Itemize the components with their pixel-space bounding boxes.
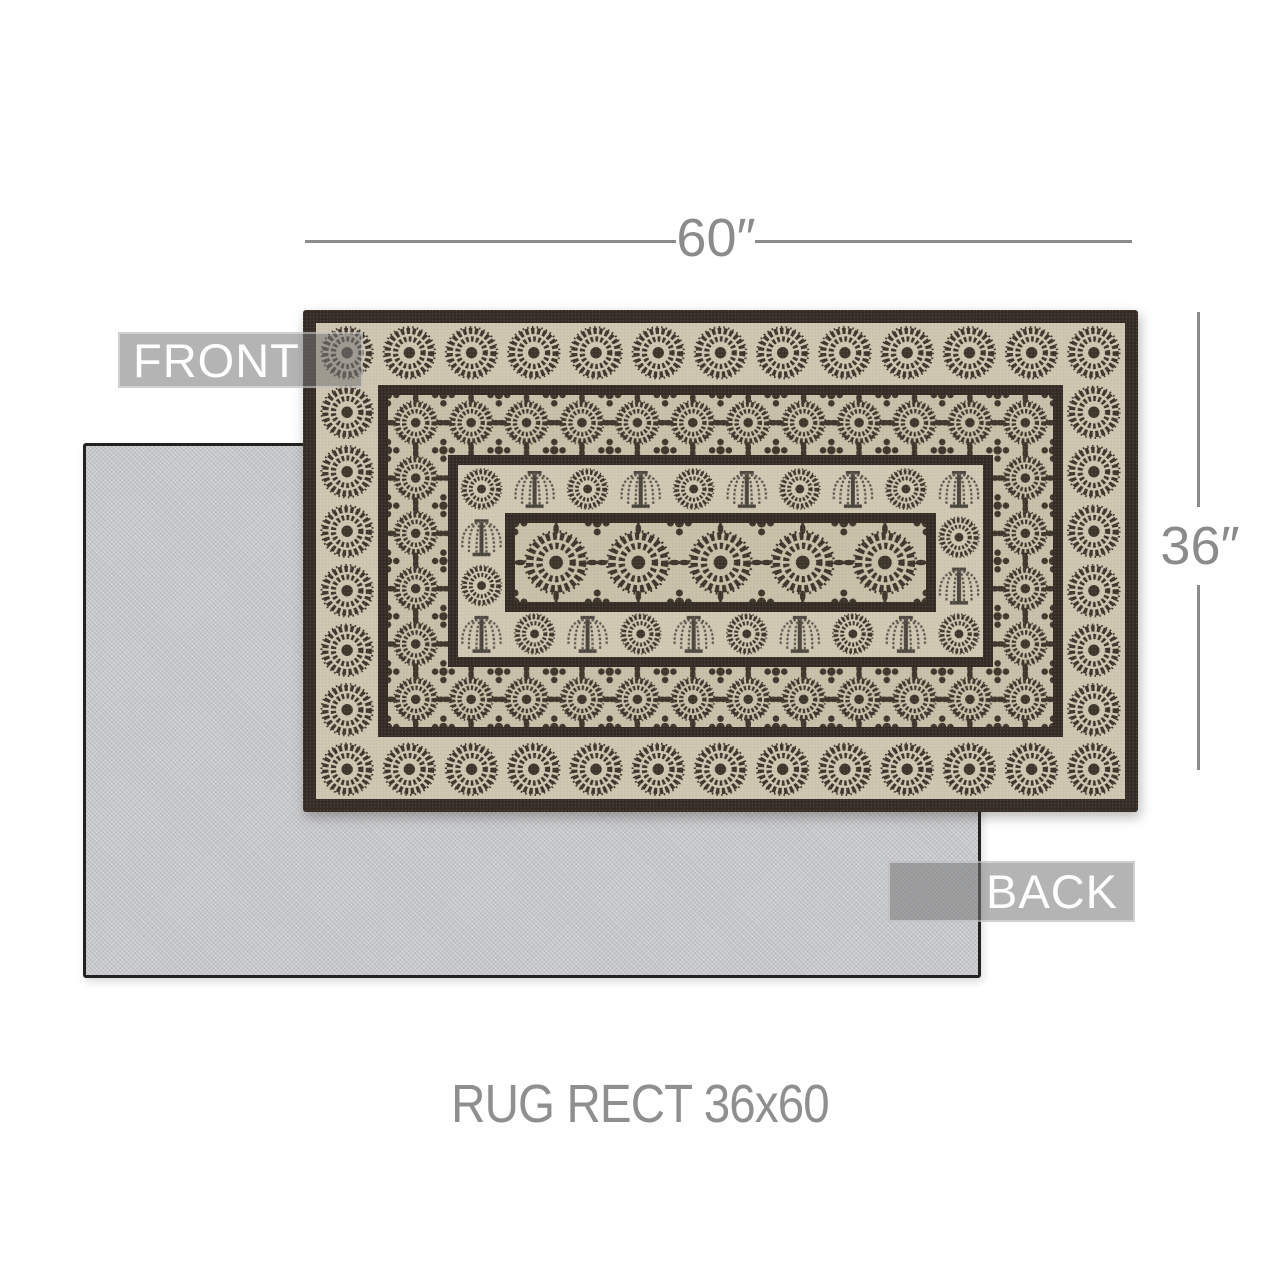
height-dimension-line-top <box>1197 312 1200 507</box>
front-label: FRONT <box>118 332 363 388</box>
product-image-canvas: FRONT BACK 60″ 36″ RUG RECT 36x60 <box>0 0 1280 1280</box>
product-caption: RUG RECT 36x60 <box>77 1076 1203 1132</box>
front-label-text: FRONT <box>133 337 300 384</box>
rug-front-view <box>303 310 1138 812</box>
width-dimension-line-right <box>755 240 1132 243</box>
height-dimension-value: 36″ <box>1130 518 1270 574</box>
width-dimension-line-left <box>305 240 676 243</box>
back-label-text: BACK <box>986 868 1118 915</box>
rug-front-weave-texture <box>303 310 1138 812</box>
back-label: BACK <box>888 861 1135 922</box>
width-dimension-value: 60″ <box>660 210 772 266</box>
height-dimension-line-bottom <box>1197 585 1200 770</box>
